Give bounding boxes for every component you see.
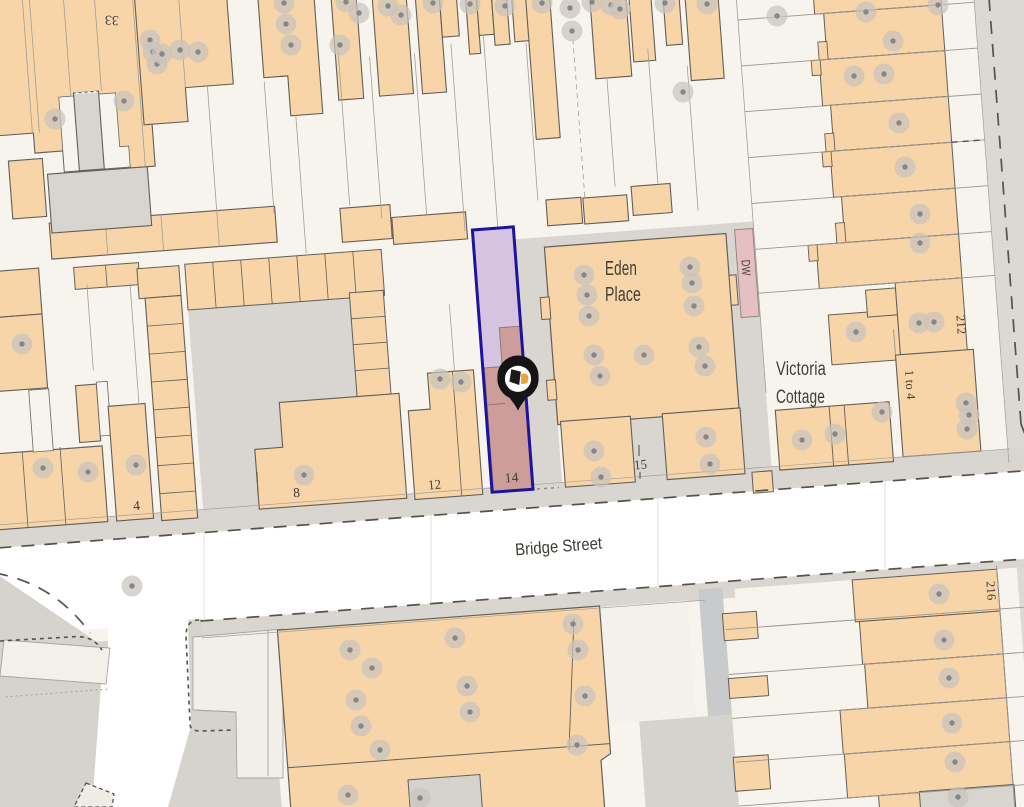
svg-text:8: 8 <box>293 485 301 500</box>
svg-text:1 to 4: 1 to 4 <box>902 369 918 400</box>
svg-text:Victoria: Victoria <box>776 359 826 380</box>
svg-text:33: 33 <box>104 13 119 29</box>
svg-text:Place: Place <box>605 284 641 306</box>
svg-text:212: 212 <box>953 315 968 335</box>
svg-text:15: 15 <box>634 457 648 473</box>
svg-text:12: 12 <box>428 477 442 493</box>
svg-text:Eden: Eden <box>605 258 637 280</box>
svg-text:DW: DW <box>738 259 753 276</box>
svg-text:216: 216 <box>983 581 998 601</box>
svg-text:4: 4 <box>133 498 141 513</box>
svg-text:14: 14 <box>504 470 519 486</box>
svg-text:Cottage: Cottage <box>776 387 825 408</box>
